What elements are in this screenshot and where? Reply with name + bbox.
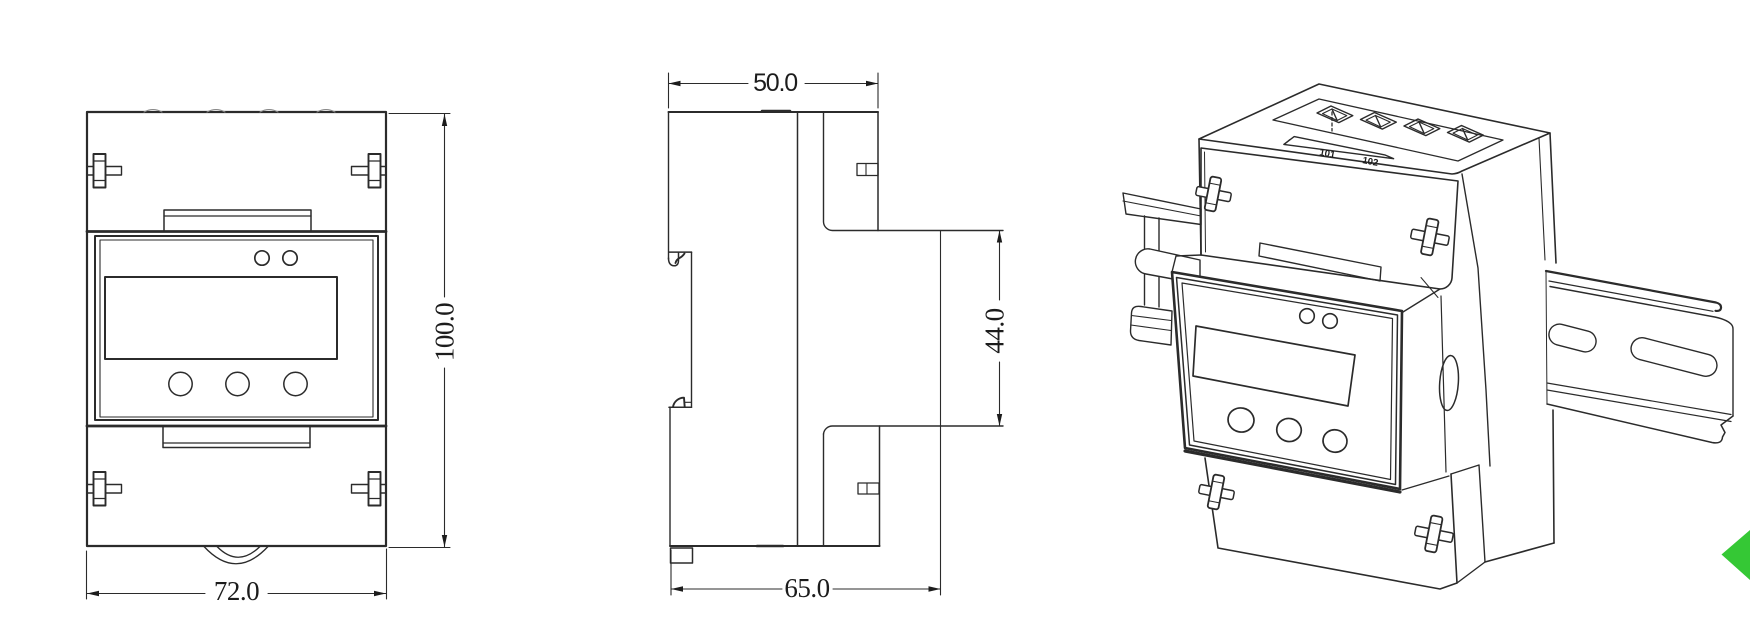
- svg-text:100.0: 100.0: [430, 303, 460, 361]
- svg-text:65.0: 65.0: [784, 573, 829, 603]
- svg-text:101: 101: [1318, 147, 1336, 161]
- svg-text:72.0: 72.0: [214, 576, 259, 606]
- svg-text:44.0: 44.0: [980, 308, 1010, 353]
- svg-text:50.0: 50.0: [753, 69, 797, 97]
- svg-text:102: 102: [1361, 155, 1379, 169]
